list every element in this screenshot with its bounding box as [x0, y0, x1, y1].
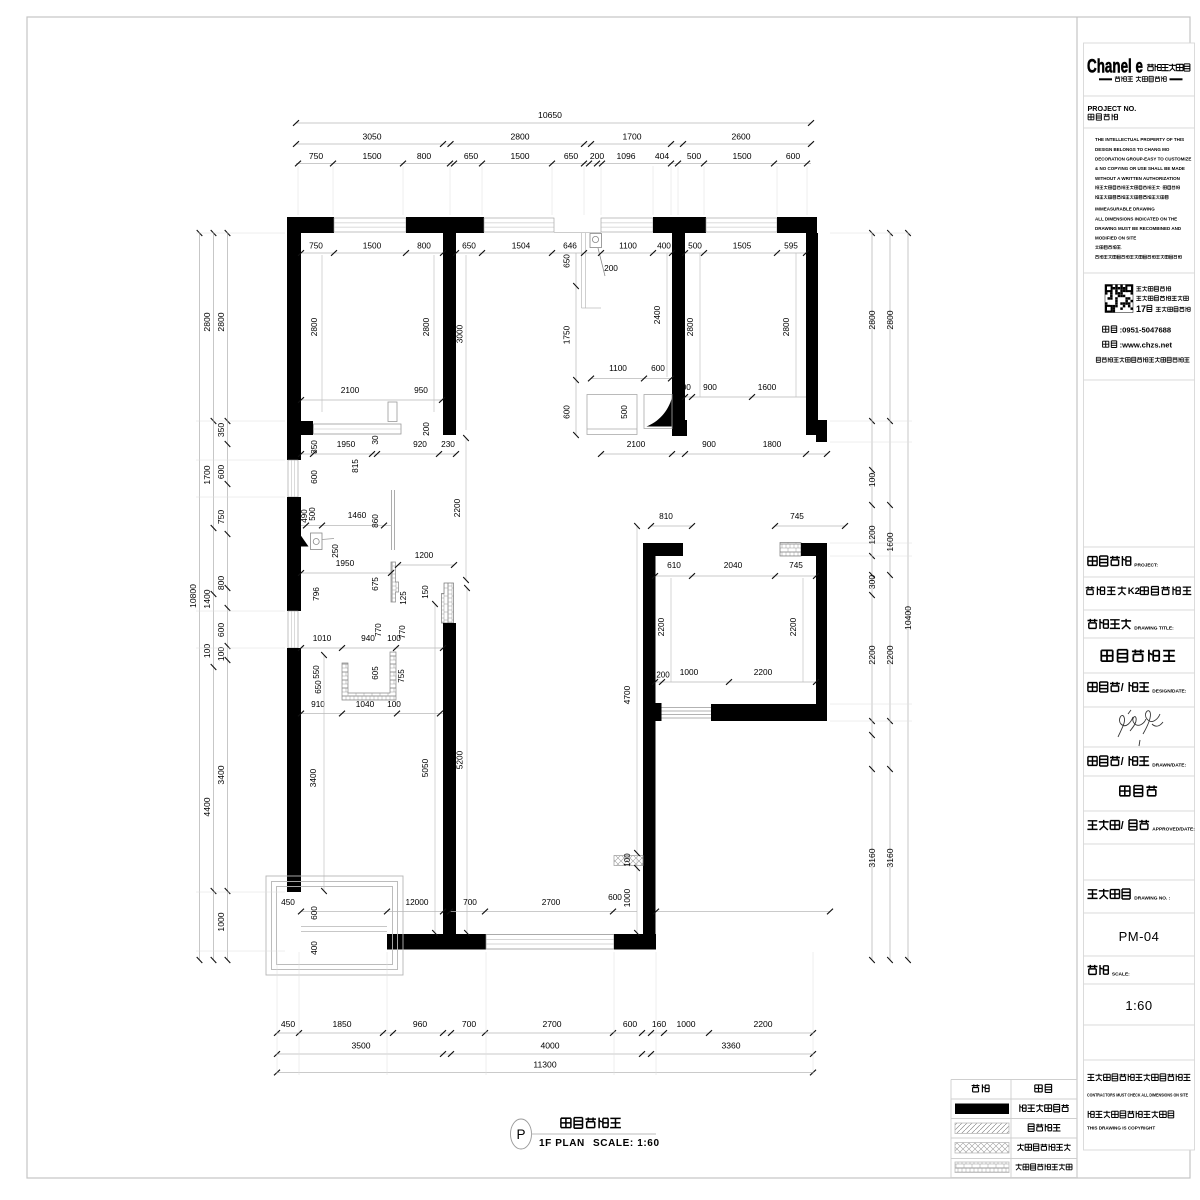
svg-text:300: 300 [867, 575, 877, 590]
svg-text:2200: 2200 [885, 645, 895, 664]
svg-text:10650: 10650 [538, 110, 562, 120]
svg-text:P: P [516, 1127, 525, 1142]
svg-text:1:60: 1:60 [1125, 998, 1152, 1013]
svg-text:PROJECT:: PROJECT: [1134, 563, 1158, 569]
svg-text:2800: 2800 [867, 310, 877, 329]
svg-text:5200: 5200 [455, 750, 465, 769]
svg-text:745: 745 [789, 560, 803, 570]
svg-text:125: 125 [399, 591, 408, 605]
svg-text:650: 650 [314, 680, 323, 694]
svg-text:2100: 2100 [341, 385, 360, 395]
svg-text:200: 200 [590, 151, 605, 161]
svg-text:100: 100 [387, 699, 401, 709]
svg-text:100: 100 [202, 644, 212, 659]
svg-text:600: 600 [309, 470, 319, 484]
svg-text:400: 400 [309, 941, 319, 955]
svg-text:1950: 1950 [337, 439, 356, 449]
svg-text:3050: 3050 [362, 132, 381, 142]
svg-text:650: 650 [464, 151, 479, 161]
svg-text:500: 500 [308, 507, 317, 521]
svg-text:12000: 12000 [405, 897, 428, 907]
svg-text:1200: 1200 [415, 550, 434, 560]
svg-text:17: 17 [1136, 304, 1146, 314]
svg-text:2800: 2800 [202, 312, 212, 331]
svg-text:3360: 3360 [721, 1041, 740, 1051]
svg-text:30: 30 [370, 435, 380, 445]
svg-text:K2: K2 [1128, 586, 1140, 597]
svg-text:2800: 2800 [885, 310, 895, 329]
svg-text:100: 100 [867, 473, 877, 488]
svg-text:1100: 1100 [619, 241, 637, 251]
svg-text:10800: 10800 [188, 584, 198, 608]
svg-text:10400: 10400 [903, 606, 913, 630]
svg-text:/: / [1121, 756, 1124, 768]
svg-text:150: 150 [421, 585, 430, 599]
svg-text:2600: 2600 [731, 132, 750, 142]
svg-text:400: 400 [657, 241, 671, 251]
svg-text:160: 160 [652, 1019, 667, 1029]
svg-text::0951-5047688: :0951-5047688 [1120, 325, 1172, 334]
svg-text:2800: 2800 [216, 312, 226, 331]
svg-text:IMMEASURABLE DRAWING: IMMEASURABLE DRAWING [1095, 207, 1155, 212]
svg-text:PM-04: PM-04 [1119, 929, 1160, 944]
svg-text:1500: 1500 [732, 151, 751, 161]
svg-text:650: 650 [562, 254, 572, 268]
svg-text:810: 810 [659, 511, 673, 521]
svg-text:APPROVED/DATE:: APPROVED/DATE: [1152, 827, 1195, 833]
svg-text:770: 770 [398, 625, 407, 639]
svg-text:450: 450 [281, 1019, 296, 1029]
svg-text:910: 910 [311, 699, 325, 709]
svg-text:595: 595 [784, 241, 798, 251]
svg-text:700: 700 [462, 1019, 477, 1029]
svg-text:DESIGN BELONGS TO CHANG MO: DESIGN BELONGS TO CHANG MO [1095, 147, 1170, 152]
svg-text:2800: 2800 [309, 317, 319, 336]
svg-text:770: 770 [374, 623, 383, 637]
svg-text:.: . [1121, 245, 1122, 250]
svg-text:2800: 2800 [510, 132, 529, 142]
svg-text:1504: 1504 [512, 241, 531, 251]
svg-text:600: 600 [309, 906, 319, 920]
svg-text:100: 100 [623, 853, 632, 867]
svg-text:920: 920 [413, 439, 427, 449]
svg-text:1600: 1600 [885, 532, 895, 551]
svg-text:2200: 2200 [754, 667, 773, 677]
svg-text:600: 600 [786, 151, 801, 161]
svg-text:& NO COPYING OR USE SHALL BE M: & NO COPYING OR USE SHALL BE MADE [1095, 166, 1185, 171]
svg-text:11300: 11300 [533, 1060, 556, 1070]
svg-text:1000: 1000 [676, 1019, 695, 1029]
svg-text:1500: 1500 [363, 241, 382, 251]
svg-text:750: 750 [216, 510, 226, 525]
svg-text:2400: 2400 [652, 305, 662, 324]
svg-text:MODIFIED ON SITE: MODIFIED ON SITE [1095, 236, 1136, 241]
svg-text:2800: 2800 [781, 317, 791, 336]
svg-text:3400: 3400 [308, 768, 318, 787]
svg-text:350: 350 [216, 423, 226, 438]
svg-text:DRAWING NO. :: DRAWING NO. : [1134, 896, 1170, 902]
svg-text:100: 100 [216, 647, 226, 662]
svg-text:SCALE: 1:60: SCALE: 1:60 [593, 1138, 660, 1149]
svg-text:2200: 2200 [788, 617, 798, 636]
svg-text:600: 600 [623, 1019, 638, 1029]
svg-text:CONTRACTORS MUST CHECK ALL DIM: CONTRACTORS MUST CHECK ALL DIMENSIONS ON… [1087, 1093, 1188, 1098]
svg-text:2200: 2200 [753, 1019, 772, 1029]
svg-text:1505: 1505 [733, 241, 752, 251]
svg-text:1460: 1460 [348, 510, 367, 520]
svg-text:DESIGN/DATE:: DESIGN/DATE: [1152, 689, 1186, 695]
svg-text:745: 745 [790, 511, 804, 521]
svg-text:815: 815 [350, 459, 360, 473]
svg-text:1096: 1096 [616, 151, 635, 161]
svg-text:WITHOUT A WRITTEN AUTHORIZATIO: WITHOUT A WRITTEN AUTHORIZATION [1095, 176, 1180, 181]
svg-text:700: 700 [463, 897, 477, 907]
svg-text:1200: 1200 [867, 525, 877, 544]
svg-text:1000: 1000 [622, 888, 632, 907]
svg-text:3160: 3160 [867, 848, 877, 867]
svg-text:4000: 4000 [540, 1041, 559, 1051]
svg-text:1010: 1010 [313, 633, 332, 643]
svg-text:·: · [1160, 185, 1161, 190]
svg-text:250: 250 [330, 544, 340, 558]
svg-text:5050: 5050 [420, 758, 430, 777]
svg-text:/: / [1121, 820, 1124, 832]
svg-text:200: 200 [656, 671, 670, 680]
svg-text:1000: 1000 [216, 912, 226, 931]
svg-text:2700: 2700 [542, 897, 561, 907]
svg-text:950: 950 [414, 385, 428, 395]
svg-text:1700: 1700 [622, 132, 641, 142]
svg-text:796: 796 [311, 587, 321, 601]
svg-text:PROJECT NO.: PROJECT NO. [1088, 104, 1137, 113]
svg-text:600: 600 [216, 465, 226, 480]
svg-text:3160: 3160 [885, 848, 895, 867]
svg-text:650: 650 [564, 151, 579, 161]
svg-text:755: 755 [397, 669, 406, 683]
svg-text:750: 750 [309, 241, 323, 251]
svg-text:750: 750 [309, 151, 324, 161]
svg-text:2800: 2800 [421, 317, 431, 336]
svg-text:1950: 1950 [336, 558, 355, 568]
svg-text:3500: 3500 [351, 1041, 370, 1051]
svg-text:DRAWING MUST BE RECOMBINED AND: DRAWING MUST BE RECOMBINED AND [1095, 226, 1182, 231]
svg-text:675: 675 [370, 577, 380, 591]
svg-text:1040: 1040 [356, 699, 375, 709]
svg-text:ALL DIMENSIONS INDICATED ON T: ALL DIMENSIONS INDICATED ON THE [1095, 216, 1177, 221]
svg-text:Chanel e: Chanel e [1087, 57, 1143, 78]
svg-text:/: / [1121, 682, 1124, 694]
svg-text:2100: 2100 [627, 439, 646, 449]
svg-text:600: 600 [651, 363, 665, 373]
svg-text:450: 450 [281, 897, 295, 907]
svg-text:1800: 1800 [763, 439, 782, 449]
svg-text:1F PLAN: 1F PLAN [539, 1138, 585, 1149]
svg-text:2200: 2200 [867, 645, 877, 664]
svg-text:2800: 2800 [685, 317, 695, 336]
svg-text:1500: 1500 [510, 151, 529, 161]
svg-text:3400: 3400 [216, 765, 226, 784]
svg-text:1700: 1700 [202, 465, 212, 484]
svg-text:500: 500 [619, 405, 629, 419]
svg-text:550: 550 [312, 665, 321, 679]
svg-text:1750: 1750 [562, 325, 572, 344]
svg-text:1000: 1000 [680, 667, 699, 677]
svg-text::www.chzs.net: :www.chzs.net [1120, 340, 1173, 349]
svg-text:1100: 1100 [609, 363, 627, 373]
svg-text:1850: 1850 [332, 1019, 351, 1029]
svg-text:900: 900 [702, 439, 716, 449]
svg-text:200: 200 [421, 422, 431, 436]
svg-text:800: 800 [417, 151, 432, 161]
svg-text:3000: 3000 [455, 324, 465, 343]
svg-text:DRAWING TITLE:: DRAWING TITLE: [1134, 626, 1174, 632]
svg-text:SCALE:: SCALE: [1112, 972, 1130, 978]
svg-text:600: 600 [562, 405, 572, 419]
svg-text:2040: 2040 [724, 560, 743, 570]
svg-text:500: 500 [687, 151, 702, 161]
svg-text:DECORATION GROUP-EASY TO CUST: DECORATION GROUP-EASY TO CUSTOMIZE [1095, 157, 1191, 162]
svg-text:500: 500 [688, 241, 702, 251]
svg-text:600: 600 [608, 892, 622, 902]
svg-text:230: 230 [441, 439, 455, 449]
svg-text:650: 650 [462, 241, 476, 251]
svg-text:1500: 1500 [362, 151, 381, 161]
svg-text:100: 100 [677, 382, 691, 392]
svg-text:4400: 4400 [202, 797, 212, 816]
svg-text:350: 350 [309, 440, 319, 454]
svg-text:200: 200 [604, 263, 618, 273]
svg-text:610: 610 [667, 560, 681, 570]
svg-text:THE INTELLECTUAL PROPERTY O: THE INTELLECTUAL PROPERTY OF THIS [1095, 137, 1184, 142]
svg-text:600: 600 [216, 623, 226, 638]
svg-text:605: 605 [371, 666, 380, 680]
svg-text:800: 800 [417, 241, 431, 251]
svg-text:860: 860 [370, 514, 380, 528]
svg-text:DRAWN/DATE:: DRAWN/DATE: [1152, 763, 1186, 769]
svg-text:2200: 2200 [656, 617, 666, 636]
svg-text:1400: 1400 [202, 589, 212, 608]
svg-text:1600: 1600 [758, 382, 777, 392]
svg-text:900: 900 [703, 382, 717, 392]
svg-text:THIS DRAWING IS COPYRIGHT: THIS DRAWING IS COPYRIGHT [1087, 1126, 1155, 1131]
svg-text:2700: 2700 [542, 1019, 561, 1029]
svg-text:800: 800 [216, 576, 226, 591]
svg-text:646: 646 [563, 241, 577, 251]
svg-text:404: 404 [655, 151, 670, 161]
svg-text:4700: 4700 [622, 685, 632, 704]
svg-text:960: 960 [413, 1019, 428, 1029]
svg-text:2200: 2200 [452, 498, 462, 517]
